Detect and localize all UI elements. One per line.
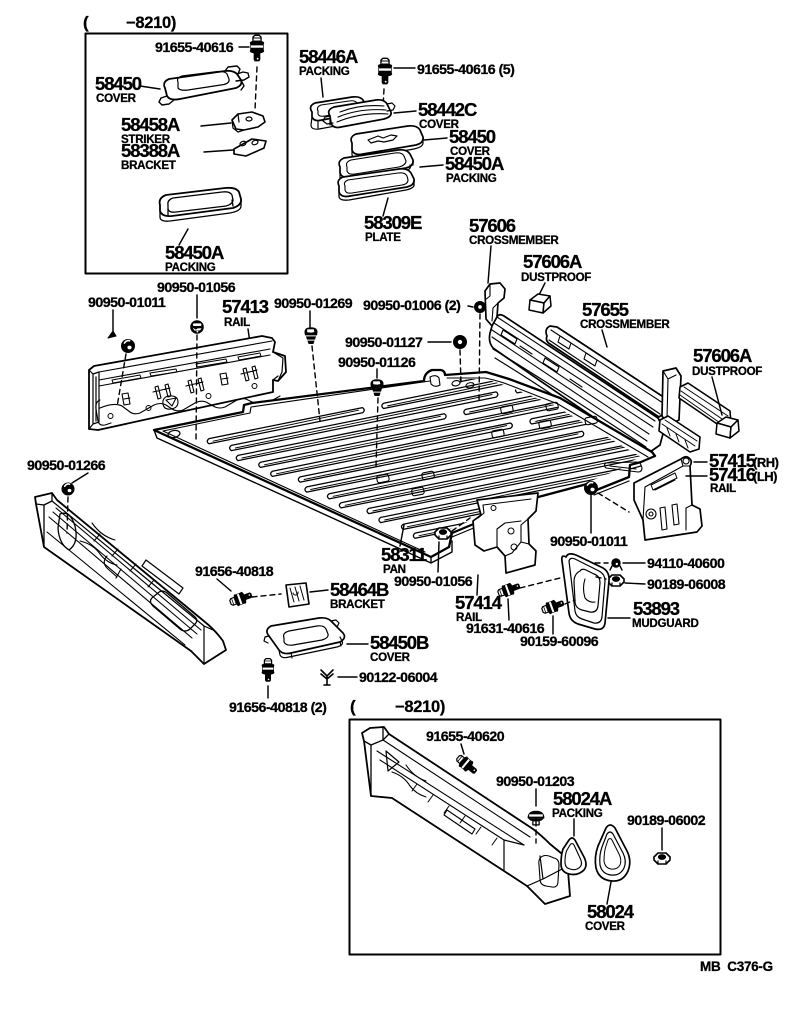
svg-text:(: ( bbox=[83, 13, 89, 32]
svg-text:DUSTPROOF: DUSTPROOF bbox=[692, 365, 762, 378]
svg-text:57414: 57414 bbox=[455, 592, 503, 613]
svg-text:90950-01056: 90950-01056 bbox=[157, 280, 236, 296]
svg-text:RAIL: RAIL bbox=[710, 482, 736, 495]
svg-text:91656-40818 (2): 91656-40818 (2) bbox=[229, 700, 327, 716]
svg-text:58442C: 58442C bbox=[418, 99, 477, 120]
svg-text:58450A: 58450A bbox=[165, 242, 224, 263]
svg-text:MB C376-G: MB C376-G bbox=[700, 959, 773, 974]
svg-text:91655-40620: 91655-40620 bbox=[426, 729, 505, 745]
svg-text:58024A: 58024A bbox=[553, 788, 612, 809]
svg-text:91656-40818: 91656-40818 bbox=[195, 564, 274, 580]
svg-text:90950-01269: 90950-01269 bbox=[274, 296, 353, 312]
svg-text:90189-06002: 90189-06002 bbox=[627, 813, 706, 829]
svg-text:58450: 58450 bbox=[449, 126, 496, 147]
svg-text:90122-06004: 90122-06004 bbox=[359, 670, 438, 686]
svg-text:90159-60096: 90159-60096 bbox=[520, 634, 599, 650]
svg-text:58024: 58024 bbox=[587, 901, 635, 922]
svg-text:57606A: 57606A bbox=[693, 345, 752, 366]
svg-text:BRACKET: BRACKET bbox=[121, 159, 176, 172]
svg-text:PACKING: PACKING bbox=[165, 261, 216, 274]
svg-text:PACKING: PACKING bbox=[446, 172, 497, 185]
svg-text:90189-06008: 90189-06008 bbox=[647, 577, 726, 593]
svg-text:DUSTPROOF: DUSTPROOF bbox=[521, 271, 591, 284]
svg-text:COVER: COVER bbox=[585, 920, 626, 933]
svg-text:COVER: COVER bbox=[370, 651, 411, 664]
svg-text:94110-40600: 94110-40600 bbox=[647, 556, 725, 572]
svg-text:RAIL: RAIL bbox=[224, 316, 250, 329]
svg-text:58450A: 58450A bbox=[445, 153, 504, 174]
svg-text:MUDGUARD: MUDGUARD bbox=[632, 617, 699, 630]
svg-text:57655: 57655 bbox=[582, 299, 629, 320]
svg-text:90950-01011: 90950-01011 bbox=[550, 534, 628, 550]
svg-text:CROSSMEMBER: CROSSMEMBER bbox=[580, 318, 670, 331]
svg-text:91655-40616 (5): 91655-40616 (5) bbox=[417, 62, 515, 78]
svg-text:58458A: 58458A bbox=[121, 114, 180, 135]
svg-text:−8210): −8210) bbox=[395, 698, 445, 716]
svg-text:−8210): −8210) bbox=[126, 14, 176, 32]
svg-text:57606: 57606 bbox=[469, 215, 516, 236]
svg-text:(LH): (LH) bbox=[753, 469, 777, 484]
svg-text:90950-01056: 90950-01056 bbox=[394, 574, 473, 590]
svg-text:58464B: 58464B bbox=[330, 579, 389, 600]
svg-text:PLATE: PLATE bbox=[365, 231, 401, 244]
svg-text:91655-40616: 91655-40616 bbox=[155, 40, 234, 56]
svg-text:58446A: 58446A bbox=[299, 46, 358, 67]
svg-text:CROSSMEMBER: CROSSMEMBER bbox=[469, 234, 559, 247]
svg-text:90950-01006 (2): 90950-01006 (2) bbox=[363, 298, 461, 314]
svg-text:(: ( bbox=[350, 697, 356, 716]
svg-text:58450B: 58450B bbox=[370, 632, 429, 653]
svg-text:PACKING: PACKING bbox=[299, 65, 350, 78]
svg-text:53893: 53893 bbox=[633, 598, 680, 619]
svg-text:57413: 57413 bbox=[222, 296, 269, 317]
svg-text:90950-01127: 90950-01127 bbox=[345, 335, 423, 351]
svg-text:90950-01011: 90950-01011 bbox=[88, 295, 166, 311]
svg-text:58388A: 58388A bbox=[121, 140, 180, 161]
svg-text:57606A: 57606A bbox=[523, 251, 582, 272]
svg-text:COVER: COVER bbox=[96, 92, 137, 105]
svg-text:58311: 58311 bbox=[381, 544, 427, 565]
svg-text:58450: 58450 bbox=[95, 73, 142, 94]
svg-text:(RH): (RH) bbox=[753, 455, 779, 470]
svg-text:PACKING: PACKING bbox=[552, 807, 603, 820]
svg-text:58309E: 58309E bbox=[364, 212, 422, 233]
svg-text:BRACKET: BRACKET bbox=[330, 598, 385, 611]
svg-text:90950-01266: 90950-01266 bbox=[27, 458, 106, 474]
